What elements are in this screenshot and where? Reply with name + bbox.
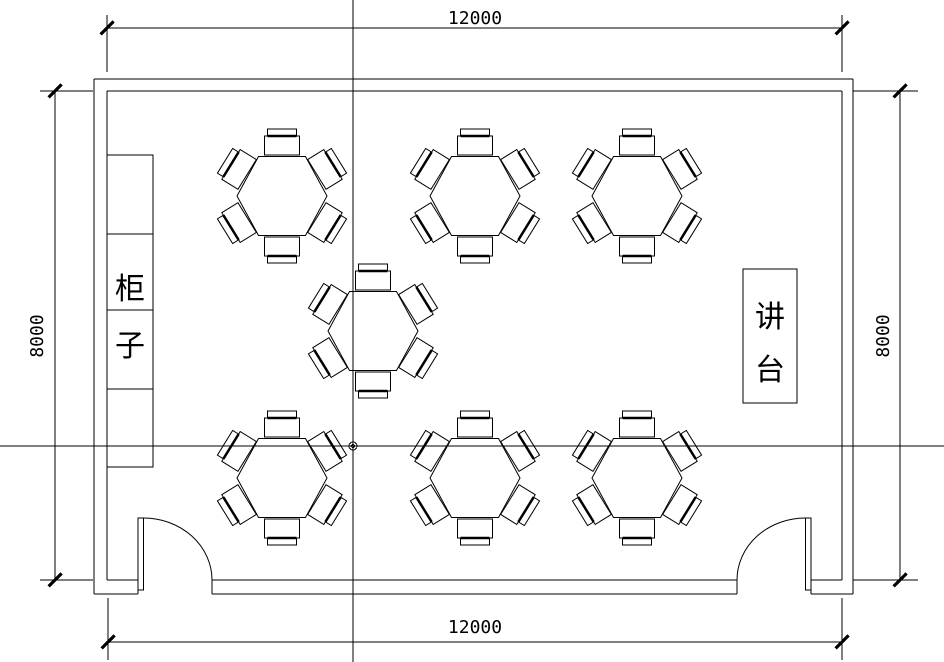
chair-seat: [356, 372, 391, 391]
door-leaf: [138, 518, 144, 590]
chair-seat: [458, 519, 493, 538]
chair: [265, 237, 300, 263]
chair-back-bar: [314, 350, 329, 375]
chair-back-bar: [416, 497, 431, 522]
chair-back: [416, 350, 437, 378]
chair: [216, 485, 257, 528]
chair-back: [680, 215, 701, 243]
chair-back: [416, 283, 437, 311]
chair: [399, 281, 440, 324]
chair-seat: [620, 237, 655, 256]
chair-back-bar: [578, 215, 593, 240]
chair: [458, 237, 493, 263]
chair: [356, 264, 391, 290]
chair-back-bar: [416, 287, 431, 312]
chair-back-bar: [325, 215, 340, 240]
podium-label-char2: 台: [755, 353, 785, 388]
chair-back-bar: [680, 152, 695, 177]
chair-back-bar: [680, 215, 695, 240]
chair-back-bar: [416, 152, 431, 177]
chair-back-bar: [325, 152, 340, 177]
chair-back-bar: [416, 350, 431, 375]
chair: [663, 146, 704, 189]
table-group: [216, 129, 348, 263]
chair-back-bar: [518, 215, 533, 240]
door-left: [138, 518, 212, 590]
chair: [663, 485, 704, 528]
chair: [307, 281, 348, 324]
chair: [308, 485, 349, 528]
chair: [620, 237, 655, 263]
chair-back: [680, 497, 701, 525]
chair-back: [572, 497, 593, 525]
podium: 讲 台: [743, 269, 797, 403]
dimension-bottom: 12000: [102, 598, 849, 660]
dimension-right: 8000: [853, 85, 918, 587]
chair-back: [572, 430, 593, 458]
chair-back: [308, 350, 329, 378]
dimension-top-value: 12000: [448, 8, 502, 29]
chair: [409, 485, 450, 528]
table-group: [409, 129, 541, 263]
chair-seat: [620, 418, 655, 437]
floor-plan-page: 12000 12000 8000 8000: [0, 0, 944, 662]
chair: [399, 338, 440, 381]
chair-back: [217, 215, 238, 243]
chair: [265, 411, 300, 437]
chair-back-bar: [578, 152, 593, 177]
chair: [571, 146, 612, 189]
chair-back-bar: [416, 215, 431, 240]
dimension-right-value: 8000: [873, 314, 894, 357]
chair-back: [410, 430, 431, 458]
chair: [216, 146, 257, 189]
chair-seat: [620, 136, 655, 155]
chair: [458, 129, 493, 155]
chair-back: [325, 497, 346, 525]
chair-back: [410, 148, 431, 176]
chair: [216, 428, 257, 471]
table-group: [571, 129, 703, 263]
chair: [409, 428, 450, 471]
floor-plan-canvas: 12000 12000 8000 8000: [0, 0, 944, 662]
chair: [620, 519, 655, 545]
chair-seat: [265, 136, 300, 155]
cabinet: 柜 子: [107, 155, 153, 467]
chair-back-bar: [314, 287, 329, 312]
door-leaf: [806, 518, 812, 590]
chair: [620, 411, 655, 437]
chair-back: [518, 497, 539, 525]
chair-back-bar: [325, 497, 340, 522]
cabinet-label-char1: 柜: [115, 272, 145, 307]
chair: [571, 485, 612, 528]
chair-back: [325, 430, 346, 458]
chair-back: [308, 283, 329, 311]
chair-seat: [458, 237, 493, 256]
chair: [571, 428, 612, 471]
chair: [308, 428, 349, 471]
chair: [663, 428, 704, 471]
chair-back: [325, 148, 346, 176]
chair: [409, 203, 450, 246]
chair-back-bar: [223, 152, 238, 177]
table-group: [216, 411, 348, 545]
chair-back: [217, 430, 238, 458]
chair-back: [680, 148, 701, 176]
chair-back-bar: [223, 215, 238, 240]
door-swing-arc: [144, 518, 213, 580]
chair-back: [518, 430, 539, 458]
chair-seat: [458, 418, 493, 437]
chair: [620, 129, 655, 155]
table-group: [571, 411, 703, 545]
podium-label-char1: 讲: [755, 300, 785, 335]
chair: [265, 519, 300, 545]
chair: [308, 146, 349, 189]
door-right: [737, 518, 811, 590]
chair-back-bar: [518, 497, 533, 522]
chair: [409, 146, 450, 189]
chair-back: [410, 215, 431, 243]
dimension-bottom-value: 12000: [448, 617, 502, 638]
table-group: [409, 411, 541, 545]
chair-back: [572, 215, 593, 243]
chair-back: [325, 215, 346, 243]
chair-back: [410, 497, 431, 525]
chair-back: [217, 497, 238, 525]
chair: [307, 338, 348, 381]
tables-layer: [216, 129, 703, 545]
chair-seat: [458, 136, 493, 155]
chair: [308, 203, 349, 246]
chair-back: [518, 148, 539, 176]
chair-back: [572, 148, 593, 176]
chair-back-bar: [680, 497, 695, 522]
chair: [501, 203, 542, 246]
door-swing-arc: [737, 518, 806, 580]
chair-back: [217, 148, 238, 176]
chair: [501, 485, 542, 528]
chair: [663, 203, 704, 246]
chair-back-bar: [518, 152, 533, 177]
chair: [458, 519, 493, 545]
chair-seat: [356, 271, 391, 290]
chair-back-bar: [578, 497, 593, 522]
chair-back: [518, 215, 539, 243]
chair: [356, 372, 391, 398]
chair-back-bar: [223, 497, 238, 522]
chair: [216, 203, 257, 246]
chair-seat: [265, 237, 300, 256]
chair: [458, 411, 493, 437]
table-group: [307, 264, 439, 398]
chair-seat: [620, 519, 655, 538]
dimension-top: 12000: [101, 8, 849, 72]
chair: [501, 146, 542, 189]
chair-back: [680, 430, 701, 458]
chair: [571, 203, 612, 246]
dimension-left: 8000: [27, 85, 93, 587]
cabinet-label-char2: 子: [115, 329, 145, 364]
chair-seat: [265, 418, 300, 437]
chair: [501, 428, 542, 471]
cabinet-outline: [107, 155, 153, 467]
chair-seat: [265, 519, 300, 538]
chair: [265, 129, 300, 155]
dimension-left-value: 8000: [27, 314, 48, 357]
